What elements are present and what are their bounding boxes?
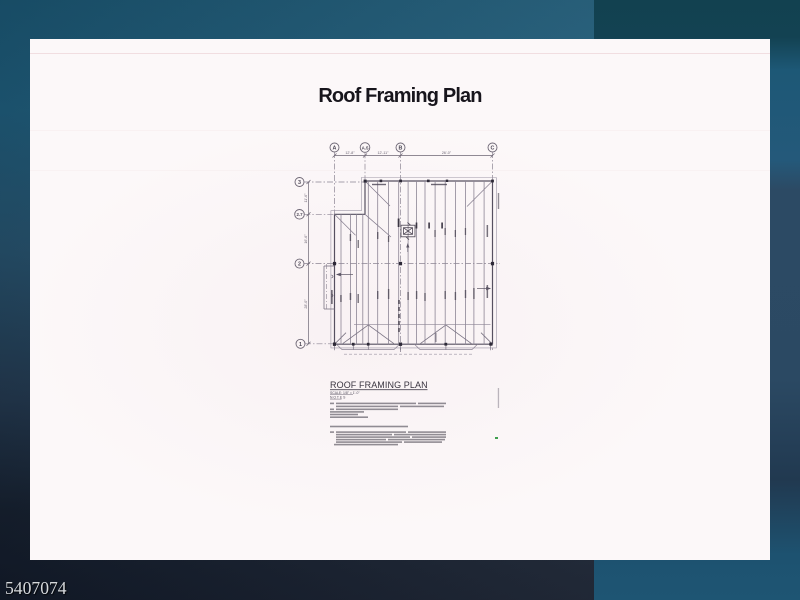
svg-text:28'-0": 28'-0" xyxy=(304,299,308,309)
svg-text:2: 2 xyxy=(298,262,301,268)
svg-text:12'-11": 12'-11" xyxy=(378,151,390,155)
svg-text:1: 1 xyxy=(299,342,302,348)
svg-text:N O T E S: N O T E S xyxy=(330,395,346,399)
svg-text:3: 3 xyxy=(298,180,301,186)
svg-text:12'-8": 12'-8" xyxy=(345,151,355,155)
svg-text:B: B xyxy=(399,146,403,152)
svg-text:SCALE: 1/8" = 1'-0": SCALE: 1/8" = 1'-0" xyxy=(330,391,360,395)
svg-text:26'-0": 26'-0" xyxy=(442,151,452,155)
svg-text:A: A xyxy=(333,146,337,152)
svg-text:16'-6": 16'-6" xyxy=(304,234,308,244)
svg-text:2.7: 2.7 xyxy=(296,212,303,217)
svg-text:ROOF FRAMING PLAN: ROOF FRAMING PLAN xyxy=(330,380,428,390)
svg-text:C: C xyxy=(491,146,495,152)
svg-text:11'-6": 11'-6" xyxy=(304,193,308,203)
svg-text:A.5: A.5 xyxy=(362,145,369,150)
